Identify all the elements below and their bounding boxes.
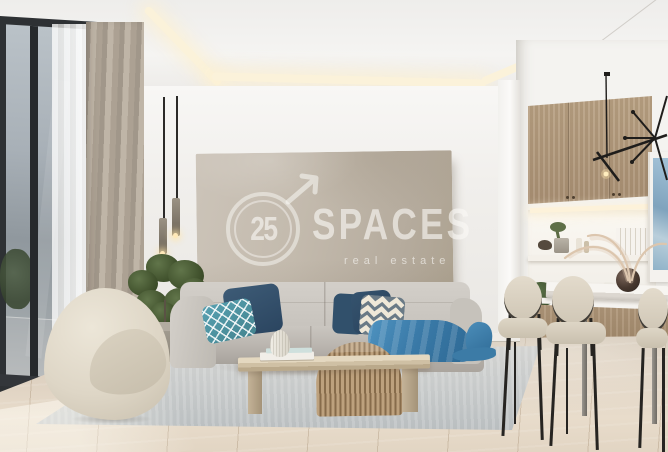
chair-seat bbox=[498, 318, 548, 338]
watermark-name: SPACES bbox=[312, 200, 432, 250]
watermark-logo-inner-ring: 25 bbox=[234, 200, 292, 258]
coffee-table-leg bbox=[402, 368, 418, 412]
pendant-cord bbox=[176, 96, 178, 200]
chair-leg bbox=[549, 344, 557, 446]
pendant-light bbox=[172, 198, 180, 236]
chair-leg bbox=[501, 338, 509, 436]
chair-leg bbox=[592, 344, 598, 450]
watermark-tagline: real estate bbox=[344, 255, 450, 267]
chair-leg bbox=[566, 348, 568, 434]
chair-leg bbox=[662, 348, 665, 452]
coffee-table-leg bbox=[248, 368, 262, 414]
chair-seat bbox=[636, 328, 668, 348]
table-vase bbox=[270, 330, 290, 357]
pendant-cord bbox=[163, 97, 165, 221]
pampas-grass-icon bbox=[565, 235, 666, 282]
window-mullion bbox=[30, 26, 38, 382]
interior-photo: 25 SPACES real estate bbox=[0, 0, 668, 452]
watermark-number: 25 bbox=[250, 210, 276, 248]
dining-chair-partial bbox=[636, 286, 668, 450]
chair-leg bbox=[514, 342, 516, 424]
chair-seat bbox=[546, 322, 606, 344]
linear-chandelier-icon bbox=[520, 30, 668, 292]
pendant-light bbox=[159, 218, 167, 254]
chair-leg bbox=[638, 348, 644, 448]
chair-backrest bbox=[638, 288, 668, 332]
dining-chair bbox=[542, 276, 610, 450]
pendant-glow-icon bbox=[173, 233, 178, 238]
outdoor-plant-silhouette bbox=[0, 248, 34, 310]
